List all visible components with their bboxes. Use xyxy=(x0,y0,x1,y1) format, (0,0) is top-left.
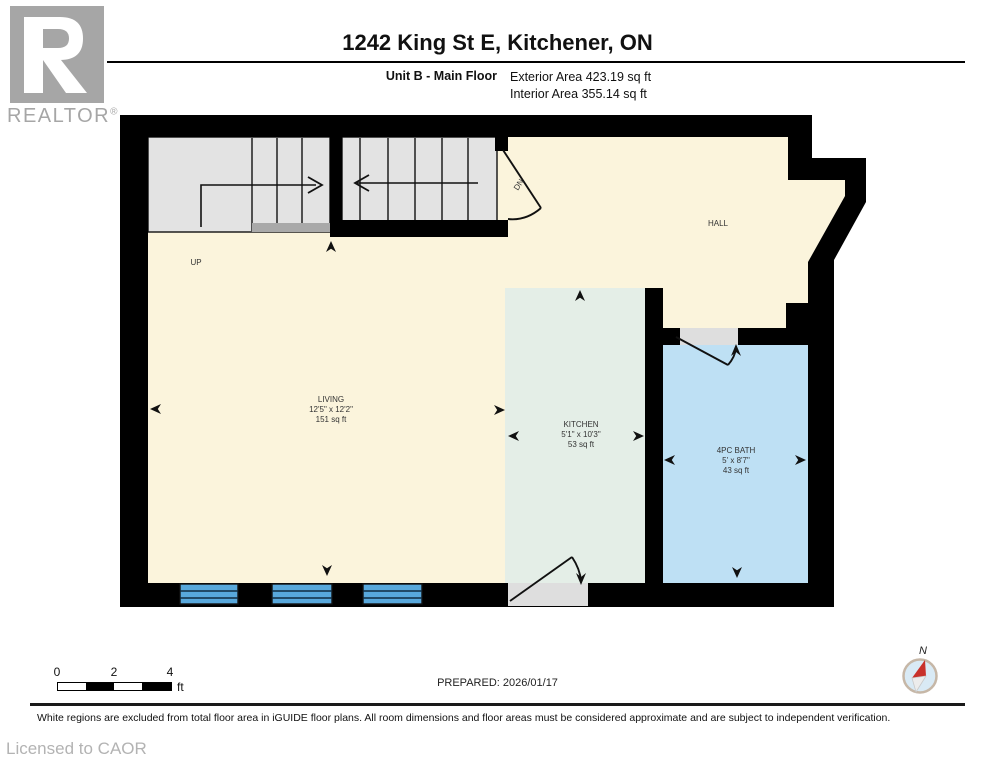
window xyxy=(180,584,238,604)
living-label: LIVING xyxy=(318,395,344,404)
hall-label: HALL xyxy=(708,219,729,228)
up-label: UP xyxy=(190,258,201,267)
license-text: Licensed to CAOR xyxy=(6,739,147,759)
stairs-up xyxy=(148,137,330,232)
disclaimer-text: White regions are excluded from total fl… xyxy=(37,712,890,724)
window xyxy=(363,584,422,604)
living-area: 151 sq ft xyxy=(316,415,347,424)
living-dims: 12'5" x 12'2" xyxy=(309,405,353,414)
kitchen-dims: 5'1" x 10'3" xyxy=(561,430,601,439)
kitchen-area: 53 sq ft xyxy=(568,440,595,449)
floorplan-page: REALTOR® 1242 King St E, Kitchener, ON U… xyxy=(0,0,995,768)
stair-threshold xyxy=(252,223,330,232)
bath-label: 4PC BATH xyxy=(717,446,756,455)
kitchen-label: KITCHEN xyxy=(563,420,598,429)
window xyxy=(272,584,332,604)
bath-area: 43 sq ft xyxy=(723,466,750,475)
prepared-date: PREPARED: 2026/01/17 xyxy=(0,677,995,689)
floorplan-drawing: LIVING 12'5" x 12'2" 151 sq ft KITCHEN 5… xyxy=(0,0,995,768)
windows xyxy=(180,584,422,604)
footer-divider xyxy=(30,703,965,706)
stairs-down xyxy=(342,137,497,222)
bath-dims: 5' x 8'7" xyxy=(722,456,750,465)
compass-north-label: N xyxy=(919,645,927,657)
compass-icon: N xyxy=(896,642,944,696)
bath-door-threshold xyxy=(680,328,738,345)
